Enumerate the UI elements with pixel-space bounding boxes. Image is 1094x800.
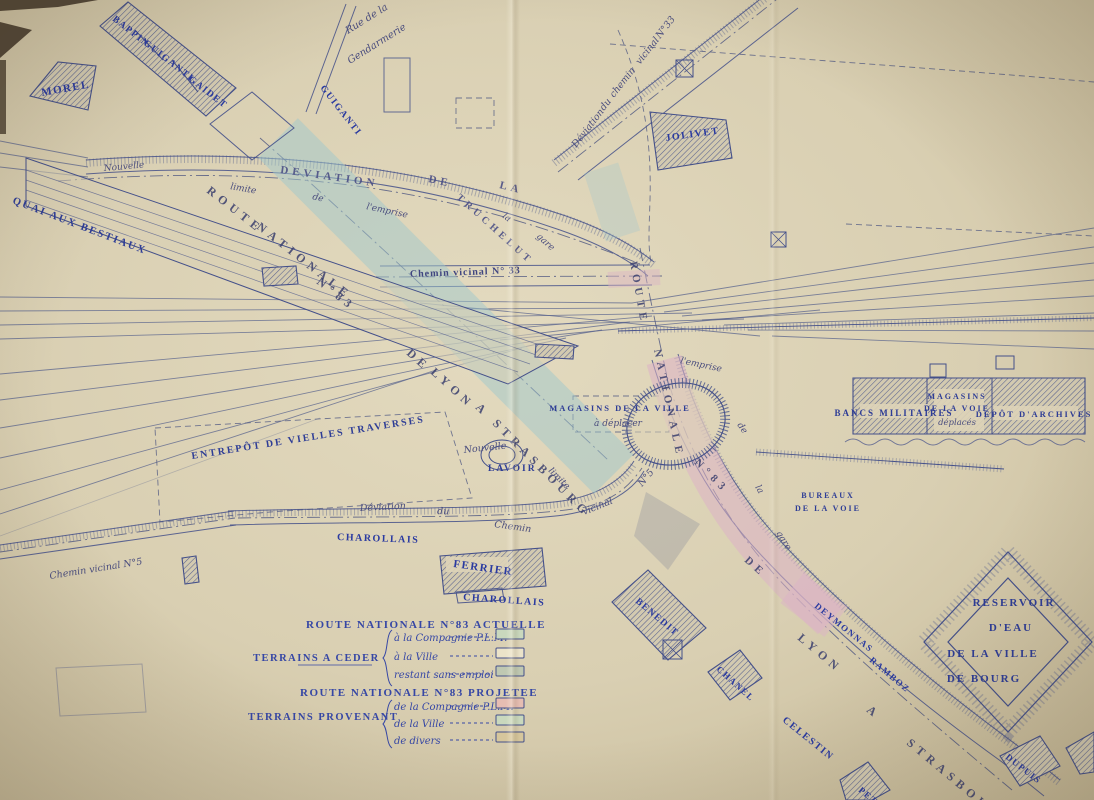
photo-edge-dark: [0, 60, 6, 134]
photo-vignette: [0, 0, 1094, 800]
scanned-map-photo: MORELBAPPINGUIGANTIGAIDETGUIGANTIJOLIVET…: [0, 0, 1094, 800]
railway-plan-drawing: MORELBAPPINGUIGANTIGAIDETGUIGANTIJOLIVET…: [0, 0, 1094, 800]
